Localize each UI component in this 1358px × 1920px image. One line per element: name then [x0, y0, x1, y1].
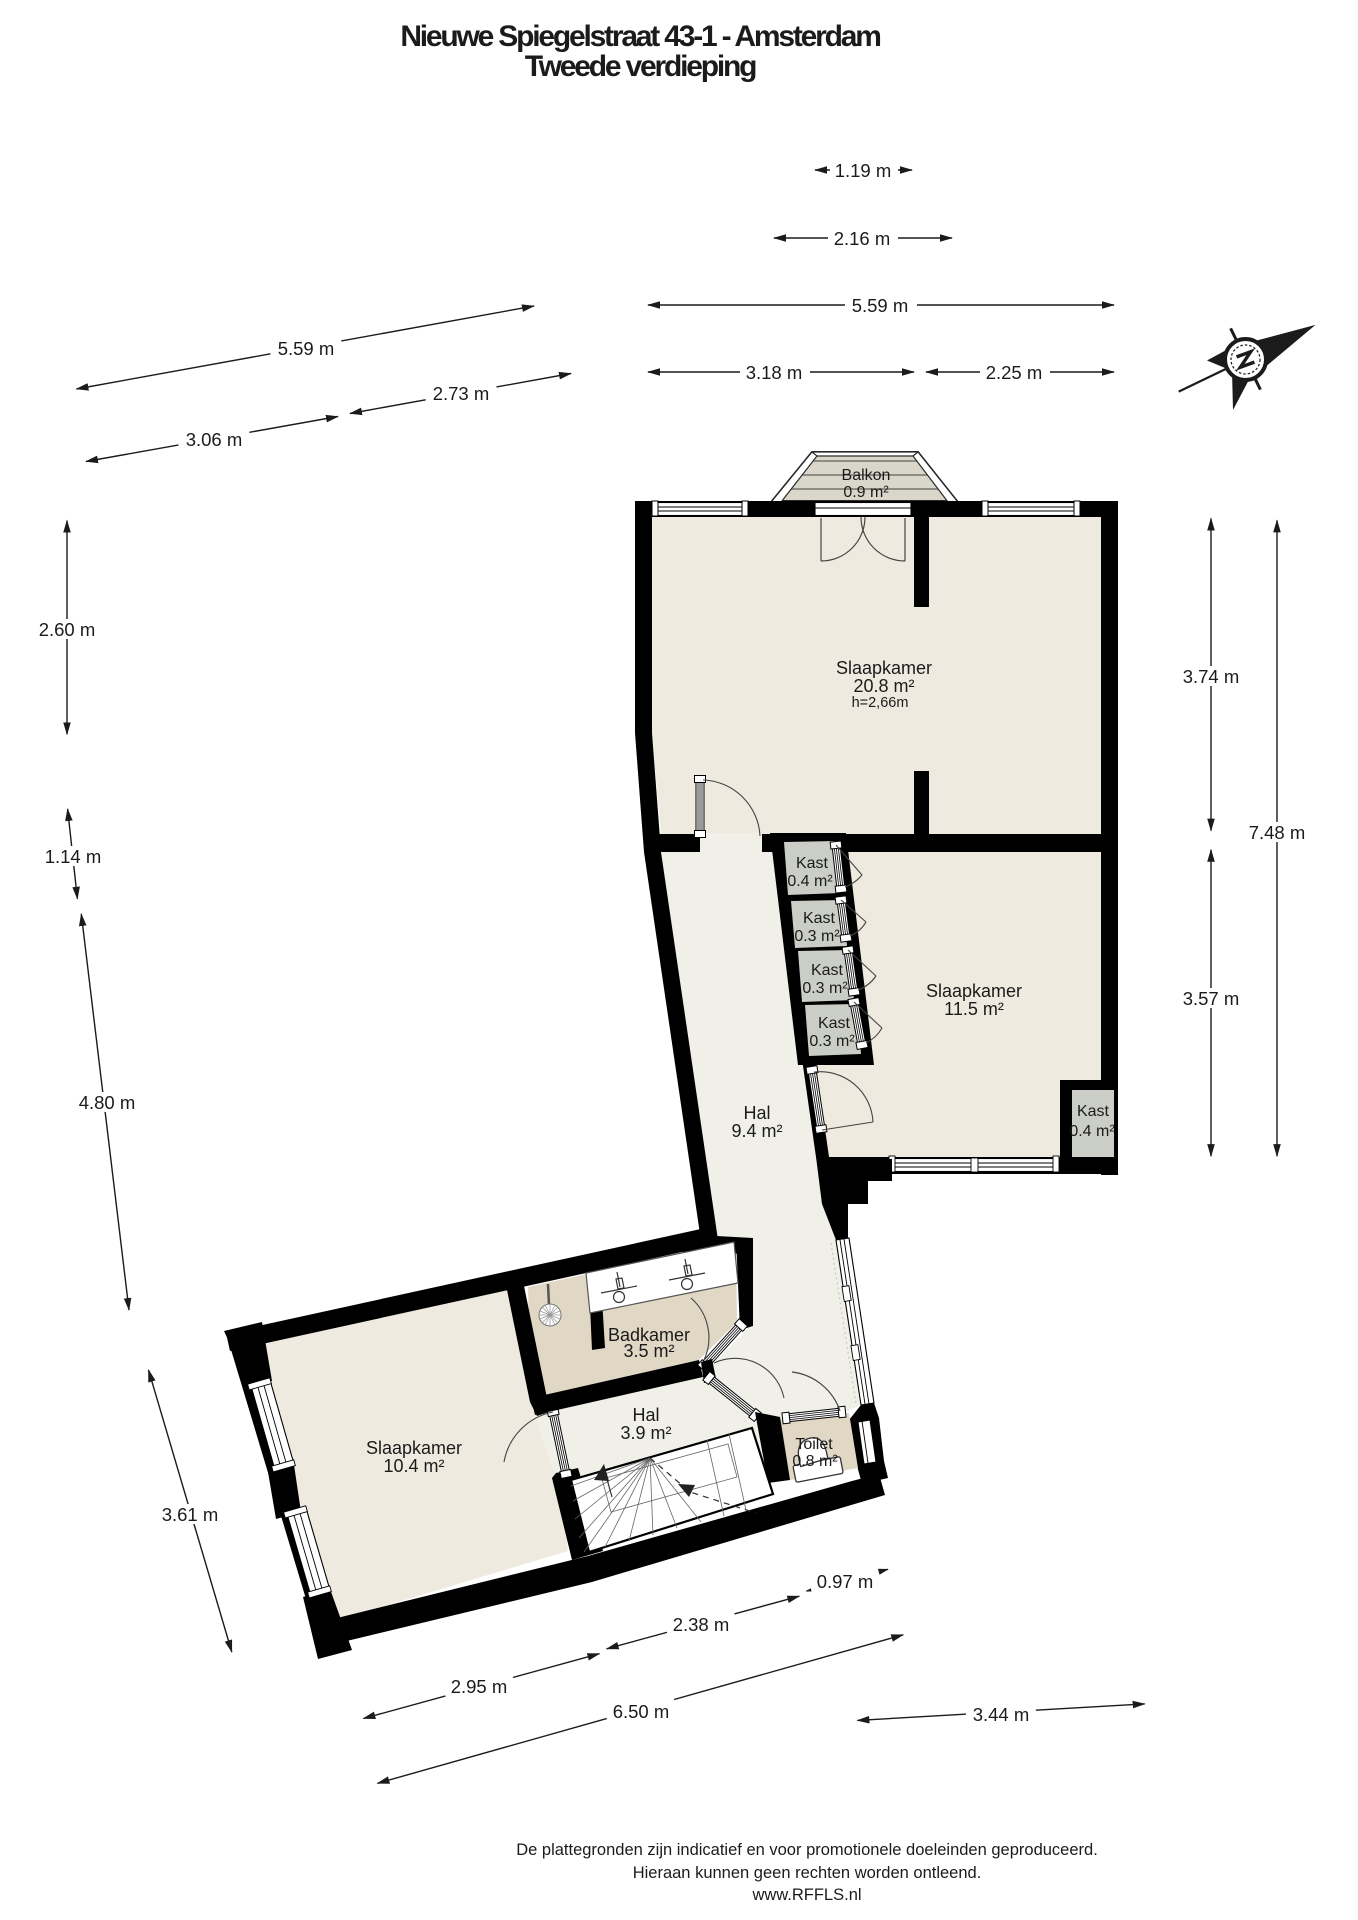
- svg-text:5.59 m: 5.59 m: [852, 295, 909, 316]
- svg-text:2.16 m: 2.16 m: [834, 228, 891, 249]
- svg-text:2.60 m: 2.60 m: [39, 619, 96, 640]
- svg-text:10.4 m²: 10.4 m²: [383, 1456, 444, 1476]
- svg-text:0.3 m²: 0.3 m²: [809, 1033, 855, 1050]
- svg-text:0.97 m: 0.97 m: [817, 1571, 874, 1592]
- svg-text:0.4 m²: 0.4 m²: [1069, 1123, 1115, 1140]
- svg-text:Kast: Kast: [803, 910, 836, 927]
- svg-text:0.8 m²: 0.8 m²: [792, 1453, 838, 1470]
- svg-text:Kast: Kast: [818, 1015, 851, 1032]
- svg-text:Slaapkamer: Slaapkamer: [836, 658, 932, 678]
- svg-text:7.48 m: 7.48 m: [1249, 822, 1306, 843]
- svg-text:3.5 m²: 3.5 m²: [623, 1341, 674, 1361]
- svg-text:De plattegronden zijn indicati: De plattegronden zijn indicatief en voor…: [516, 1841, 1098, 1859]
- svg-text:3.44 m: 3.44 m: [973, 1704, 1030, 1725]
- svg-text:Balkon: Balkon: [842, 467, 891, 484]
- svg-text:3.74 m: 3.74 m: [1183, 666, 1240, 687]
- svg-text:3.06 m: 3.06 m: [186, 429, 243, 450]
- svg-text:Hal: Hal: [632, 1405, 659, 1425]
- svg-text:Tweede verdieping: Tweede verdieping: [525, 50, 756, 83]
- svg-text:Slaapkamer: Slaapkamer: [366, 1438, 462, 1458]
- svg-text:Toilet: Toilet: [795, 1436, 833, 1453]
- svg-text:1.14 m: 1.14 m: [45, 846, 102, 867]
- svg-text:6.50 m: 6.50 m: [613, 1701, 670, 1722]
- svg-text:20.8 m²: 20.8 m²: [853, 676, 914, 696]
- svg-text:www.RFFLS.nl: www.RFFLS.nl: [751, 1886, 861, 1904]
- svg-text:2.95 m: 2.95 m: [451, 1676, 508, 1697]
- svg-text:2.25 m: 2.25 m: [986, 362, 1043, 383]
- svg-text:3.9 m²: 3.9 m²: [620, 1423, 671, 1443]
- svg-text:Kast: Kast: [811, 962, 844, 979]
- svg-text:2.38 m: 2.38 m: [673, 1614, 730, 1635]
- svg-text:Kast: Kast: [1077, 1103, 1110, 1120]
- svg-text:Hal: Hal: [743, 1103, 770, 1123]
- svg-text:3.18 m: 3.18 m: [746, 362, 803, 383]
- svg-text:5.59 m: 5.59 m: [278, 338, 335, 359]
- svg-text:0.4 m²: 0.4 m²: [787, 873, 833, 890]
- svg-text:11.5 m²: 11.5 m²: [944, 999, 1004, 1019]
- svg-text:0.9 m²: 0.9 m²: [843, 484, 889, 501]
- svg-text:0.3 m²: 0.3 m²: [794, 928, 840, 945]
- svg-text:Kast: Kast: [796, 855, 829, 872]
- svg-text:2.73 m: 2.73 m: [433, 383, 490, 404]
- svg-text:9.4 m²: 9.4 m²: [731, 1121, 782, 1141]
- svg-text:h=2,66m: h=2,66m: [852, 695, 909, 711]
- svg-text:1.19 m: 1.19 m: [835, 160, 892, 181]
- svg-text:Nieuwe Spiegelstraat 43-1 - Am: Nieuwe Spiegelstraat 43-1 - Amsterdam: [400, 20, 880, 53]
- svg-text:4.80 m: 4.80 m: [79, 1092, 136, 1113]
- svg-text:Slaapkamer: Slaapkamer: [926, 981, 1022, 1001]
- svg-text:3.57 m: 3.57 m: [1183, 988, 1240, 1009]
- svg-text:0.3 m²: 0.3 m²: [802, 980, 848, 997]
- svg-text:Hieraan kunnen geen rechten wo: Hieraan kunnen geen rechten worden ontle…: [633, 1864, 982, 1882]
- svg-text:3.61 m: 3.61 m: [162, 1504, 219, 1525]
